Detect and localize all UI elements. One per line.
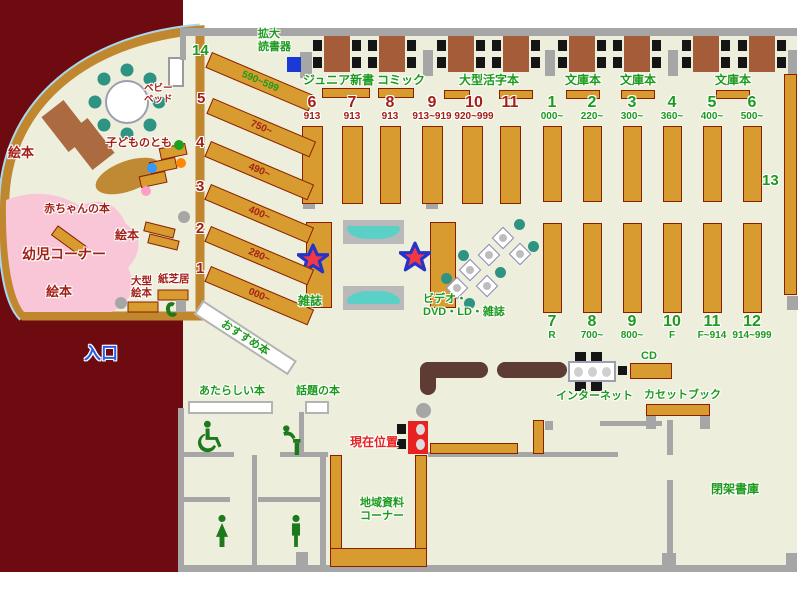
kamishibai-label: 紙芝居 (158, 273, 190, 285)
stool (441, 273, 452, 284)
pillar (700, 416, 710, 429)
bookshelf-8 (380, 126, 401, 204)
bookshelf-g6 (743, 126, 762, 202)
stool (495, 267, 506, 278)
baby-bed-label: ベビーベッド (144, 84, 173, 106)
service-counter (420, 362, 436, 395)
shelf-label-g1: 1000~ (530, 95, 574, 122)
pillar (115, 297, 127, 309)
chair (591, 352, 602, 361)
reading-table (379, 36, 405, 72)
bookshelf-g5 (703, 126, 722, 202)
kodomo-no-tomo-label: 子どものとも (106, 137, 172, 150)
topic-books-shelf (305, 401, 329, 414)
pillar (646, 416, 656, 429)
shelf-number-5: 5 (197, 90, 205, 107)
bookshelf (430, 443, 518, 454)
chair (575, 352, 586, 361)
wall (180, 28, 186, 60)
sofa-bench (343, 220, 404, 244)
picture-books-label: 絵本 (115, 229, 139, 243)
reading-table (503, 36, 529, 72)
cassette-book-label: カセットブック (644, 389, 721, 402)
topic-books-label: 話題の本 (296, 385, 340, 398)
wall (667, 420, 673, 455)
magnifying-reader-device (287, 57, 301, 72)
library-floor-map: 590~599 750~ 490~ 400~ 280~ 000~ おすすめ本 1… (0, 0, 800, 600)
current-location-marker (408, 421, 428, 454)
new-books-label: あたらしい本 (199, 385, 265, 398)
bookshelf-9 (422, 126, 443, 204)
local-materials-shelf (330, 548, 427, 567)
shelf-label-13: 13 (762, 172, 779, 189)
pillar (787, 296, 798, 310)
kamishibai-shelf (158, 290, 188, 300)
bookshelf-g10 (663, 223, 682, 313)
shelf-label-g8: 8700~ (570, 314, 614, 341)
baby-bed (169, 58, 183, 86)
shelf-label-g4: 4360~ (650, 95, 694, 122)
wall (786, 553, 797, 566)
wall (545, 421, 553, 430)
bookshelf-g1 (543, 126, 562, 202)
pillar (788, 50, 797, 74)
shelf-label-g9: 9800~ (610, 314, 654, 341)
wall (667, 480, 673, 555)
pillar (545, 50, 555, 76)
video-dvd-label: ビデオ・DVD・LD・雑誌 (423, 293, 505, 318)
big-picture-book-shelf (128, 302, 158, 312)
stool (514, 219, 525, 230)
sofa-bench (343, 286, 404, 310)
wall (180, 497, 230, 502)
junior-shinsho-label: ジュニア新書 (303, 74, 374, 88)
magazine-label: 雑誌 (298, 295, 322, 309)
stool (458, 250, 469, 261)
large-print-label: 大型活字本 (459, 74, 519, 88)
wall (320, 455, 326, 567)
picture-books-label: 絵本 (46, 285, 72, 300)
chair (397, 424, 406, 434)
new-books-shelf (188, 401, 273, 414)
chair (618, 366, 627, 375)
shelf-number-2: 2 (196, 220, 204, 237)
bunko-label: 文庫本 (565, 74, 601, 88)
bookshelf-g12 (743, 223, 762, 313)
reading-table (693, 36, 719, 72)
bookshelf-g8 (583, 223, 602, 313)
bookshelf-g4 (663, 126, 682, 202)
shelf-label-g10: 10F (650, 314, 694, 341)
internet-label: インターネット (556, 390, 633, 403)
bookshelf-11 (500, 126, 521, 204)
shelf-label-g3: 3300~ (610, 95, 654, 122)
shelf-label-g12: 12914~999 (730, 314, 774, 341)
bookshelf-g9 (623, 223, 642, 313)
shelf-number-14: 14 (192, 42, 209, 59)
pillar (416, 403, 431, 418)
shelf-number-4: 4 (196, 134, 204, 151)
star-marker (399, 241, 431, 273)
reading-table (749, 36, 775, 72)
reading-table (569, 36, 595, 72)
woman-icon (207, 514, 237, 552)
big-picture-book-label: 大型絵本 (131, 275, 152, 299)
bookshelf-13 (784, 74, 797, 295)
service-counter (497, 362, 567, 378)
current-location-label: 現在位置 (350, 436, 398, 450)
pillar (178, 211, 190, 223)
shelf-label-r11: 11 (488, 95, 532, 112)
shelf-label-r6: 6913 (290, 95, 334, 122)
wall (258, 497, 322, 502)
shelf-label-g11: 11F~914 (690, 314, 734, 341)
cassette-shelf (646, 404, 710, 416)
bookshelf-g11 (703, 223, 722, 313)
entrance-label: 入口 (84, 344, 118, 364)
wall-west (178, 408, 184, 567)
chair (397, 439, 406, 449)
local-materials-label: 地域資料コーナー (346, 497, 418, 522)
shelf-label-r9: 9913~919 (410, 95, 454, 122)
shelf-label-g5: 5400~ (690, 95, 734, 122)
wall (252, 455, 257, 567)
cd-label: CD (641, 350, 657, 363)
comic-label: コミック (377, 74, 425, 88)
round-table (106, 81, 148, 123)
shelf-label-g7: 7R (530, 314, 574, 341)
shelf-number-3: 3 (196, 178, 204, 195)
reading-table (448, 36, 474, 72)
reading-table (324, 36, 350, 72)
wall (296, 552, 308, 566)
internet-table (568, 361, 616, 382)
pillar (668, 50, 678, 76)
magnifying-reader-label: 拡大読書器 (258, 28, 291, 53)
bookshelf-g3 (623, 126, 642, 202)
bookshelf-g7 (543, 223, 562, 313)
bunko-label: 文庫本 (715, 74, 751, 88)
bookshelf-g2 (583, 126, 602, 202)
wheelchair-icon (193, 420, 227, 454)
shelf-number-1: 1 (196, 260, 204, 277)
shelf-label-r8: 8913 (368, 95, 412, 122)
wall-bottom (178, 565, 797, 572)
toddler-corner-label: 幼児コーナー (22, 246, 106, 262)
reading-table (624, 36, 650, 72)
man-icon (281, 514, 311, 552)
bookshelf-7 (342, 126, 363, 204)
bookshelf-10 (462, 126, 483, 204)
wall (662, 553, 676, 566)
bookshelf (533, 420, 544, 454)
picture-books-label: 絵本 (8, 146, 34, 161)
closed-stacks-label: 閉架書庫 (711, 483, 759, 497)
shelf-label-g6: 6500~ (730, 95, 774, 122)
baby-books-label: 赤ちゃんの本 (44, 203, 110, 216)
stool (528, 241, 539, 252)
drinking-fountain-icon (277, 423, 303, 455)
cd-shelf (630, 363, 672, 379)
bunko-label: 文庫本 (620, 74, 656, 88)
shelf-label-g2: 2220~ (570, 95, 614, 122)
